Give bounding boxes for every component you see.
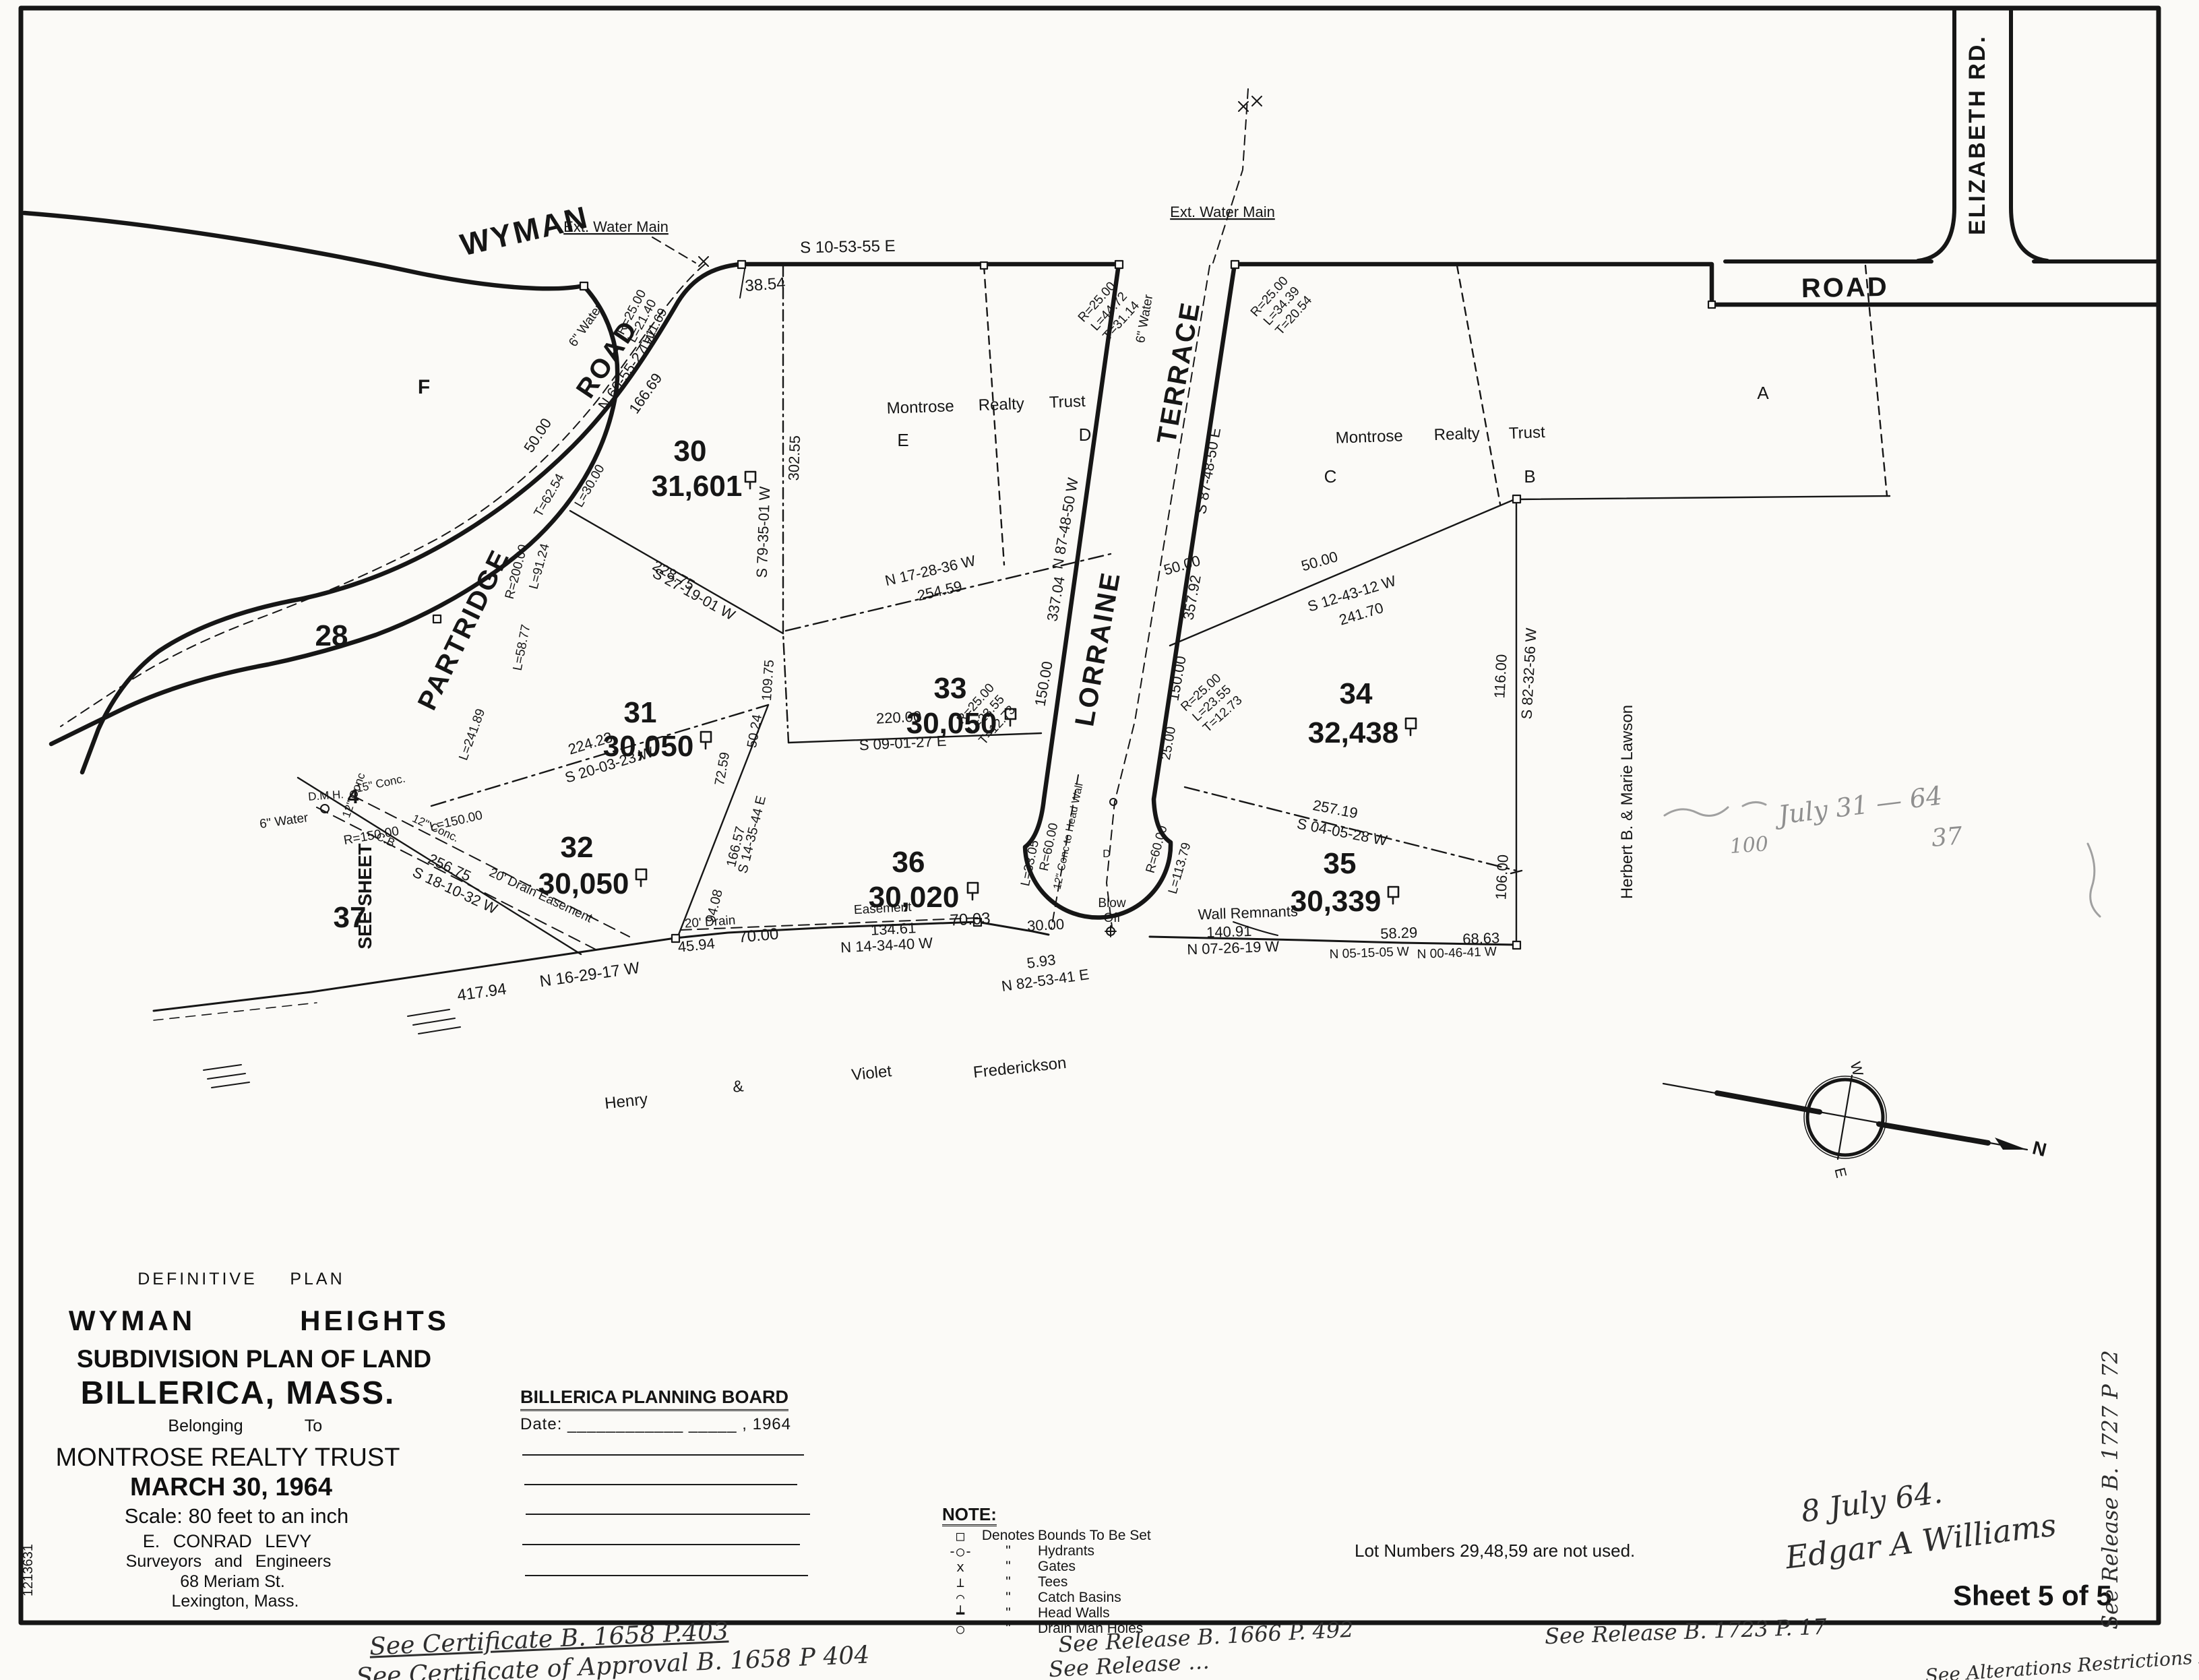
title-subtitle: SUBDIVISION PLAN OF LAND — [77, 1345, 431, 1373]
owner-frederickson-3: Violet — [850, 1062, 892, 1084]
bearing-n051505w: N 05-15-05 W — [1329, 945, 1409, 962]
partridge-road-west-edge — [51, 286, 617, 744]
pencil-date: July 31 — 64 — [1772, 780, 1944, 830]
planning-board-heading: BILLERICA PLANNING BOARD — [520, 1387, 788, 1411]
lot-30-area: 31,601 — [652, 470, 743, 503]
blow-off-label-2: Off — [1104, 911, 1121, 925]
title-to: To — [305, 1417, 322, 1436]
legend-ditto: Denotes — [979, 1528, 1038, 1544]
owner-frederickson-1: Henry — [604, 1090, 649, 1113]
parcel-f: F — [418, 376, 430, 398]
dist-7000: 70.00 — [737, 925, 779, 946]
title-firm: E. CONRAD LEVY — [143, 1531, 312, 1552]
title-definitive: DEFINITIVE — [137, 1270, 257, 1289]
bearing-n825341e: N 82-53-41 E — [1000, 966, 1090, 995]
dist-3854: 38.54 — [745, 274, 786, 295]
blow-off-label-1: Blow — [1098, 896, 1125, 910]
bearing-n172836w: N 17-28-36 W — [884, 552, 977, 589]
lot-34-number: 34 — [1340, 677, 1373, 710]
bearing-n004641w: N 00-46-41 W — [1417, 945, 1497, 962]
parcel-d: D — [1079, 425, 1092, 445]
subdivision-map-drawing: WYMANROADELIZABETH RD.PARTRIDGEROADLORRA… — [0, 0, 2199, 1680]
lorraine-road-name: LORRAINE — [1070, 569, 1126, 728]
dist-14091: 140.91 — [1206, 923, 1252, 941]
dist-22000: 220.00 — [875, 708, 922, 726]
bearing-s271901w: S 27-19-01 W — [650, 565, 738, 624]
lot-35-number: 35 — [1324, 847, 1357, 880]
dist-4594: 45.94 — [677, 935, 716, 956]
curve-l24189: L=241.89 — [456, 707, 488, 762]
title-owner: MONTROSE REALTY TRUST — [56, 1443, 400, 1472]
wyman-road-word: ROAD — [1801, 272, 1890, 303]
bearing-wyman: S 10-53-55 E — [800, 237, 896, 257]
lots-not-used-note: Lot Numbers 29,48,59 are not used. — [1355, 1541, 1635, 1561]
compass-rose — [1663, 1076, 2027, 1159]
lot-34-area: 32,438 — [1308, 716, 1399, 749]
legend-ditto: " — [979, 1590, 1038, 1606]
wyman-road-south-edge-right — [1235, 264, 2159, 305]
dist-25719: 257.19 — [1311, 797, 1359, 821]
curve-l9124: L=91.24 — [527, 542, 553, 591]
legend-row: -○-"Hydrants — [942, 1543, 1293, 1559]
legend-row: ⊥"Tees — [942, 1574, 1293, 1590]
pencil-scribbles — [1665, 802, 2100, 916]
elizabeth-road-name: ELIZABETH RD. — [1964, 34, 1990, 235]
pencil-100: 100 — [1729, 832, 1770, 859]
legend-symbol: x — [942, 1559, 979, 1575]
signature-line — [526, 1514, 810, 1515]
lot-35-area: 30,339 — [1291, 885, 1382, 918]
signature-line — [524, 1484, 797, 1485]
owner-frederickson-2: & — [732, 1077, 745, 1096]
pipe-12in-conc-b: 12" Conc — [340, 771, 368, 819]
dist-5829: 58.29 — [1380, 924, 1418, 942]
legend-symbol: ⊥ — [942, 1574, 979, 1590]
parcel-c: C — [1324, 466, 1337, 487]
legend-symbol: ◠ — [942, 1590, 979, 1606]
water-6in-partridge-lower: 6" Water — [259, 811, 309, 832]
owner-frederickson-4: Frederickson — [972, 1054, 1067, 1082]
bearing-n072619w: N 07-26-19 W — [1187, 938, 1280, 958]
parcel-b: B — [1524, 466, 1535, 487]
bearing-s823256w: S 82-32-56 W — [1518, 627, 1539, 720]
dist-3000: 30.00 — [1026, 916, 1064, 935]
parcel-e: E — [897, 430, 908, 450]
wall-remnants-label: Wall Remnants — [1198, 902, 1298, 923]
drain-easement-bottom-a: 20' Drain — [684, 913, 736, 931]
lot-33-number: 33 — [934, 672, 967, 705]
title-date: MARCH 30, 1964 — [130, 1473, 332, 1502]
compass-w: W — [1847, 1060, 1867, 1078]
title-name2: HEIGHTS — [300, 1305, 450, 1337]
dmh-label: D.M.H. — [308, 788, 344, 803]
legend-ditto: " — [979, 1605, 1038, 1621]
legend-label: Head Walls — [1038, 1605, 1293, 1621]
water-6in-terrace: 6" Water — [1134, 293, 1156, 344]
dist-33704: 337.04 — [1043, 575, 1067, 623]
pencil-37: 37 — [1930, 822, 1963, 852]
dist-2500: 25.00 — [1158, 725, 1179, 761]
bearing-s090127e: S 09-01-27 E — [859, 733, 947, 754]
lot-36-number: 36 — [892, 846, 925, 879]
owner-montrose-1c: Trust — [1049, 392, 1086, 412]
title-town: BILLERICA, MASS. — [81, 1375, 396, 1412]
legend-label: Tees — [1038, 1574, 1293, 1590]
legend-ditto: " — [979, 1574, 1038, 1590]
lot-30-number: 30 — [674, 435, 707, 468]
drain-d-mark: D — [1103, 848, 1111, 860]
owner-montrose-1b: Realty — [978, 395, 1024, 414]
legend-symbol: -○- — [942, 1543, 979, 1559]
legend-row: ┷"Head Walls — [942, 1605, 1293, 1621]
ext-water-main-left: Ext. Water Main — [563, 218, 669, 235]
bearing-n162917w: N 16-29-17 W — [538, 959, 641, 991]
lot-32-number: 32 — [561, 831, 594, 864]
legend-symbol: □ — [942, 1528, 979, 1544]
planning-board-date-line: Date: ____________ _____ , 1964 — [520, 1415, 791, 1434]
dist-6863: 68.63 — [1462, 929, 1500, 947]
signature-line — [525, 1575, 808, 1576]
legend-symbol: ○ — [942, 1621, 979, 1637]
dist-25459: 254.59 — [916, 578, 964, 604]
lot-37-number: 37 — [334, 901, 367, 934]
legend-symbol: ┷ — [942, 1605, 979, 1621]
title-belonging: Belonging — [168, 1417, 243, 1436]
dist-15000-w: 150.00 — [1031, 660, 1055, 708]
legend-label: Hydrants — [1038, 1543, 1293, 1559]
dist-7003: 70.03 — [950, 909, 991, 929]
survey-plan-sheet: WYMANROADELIZABETH RD.PARTRIDGEROADLORRA… — [0, 0, 2199, 1680]
dist-5000-a: 50.00 — [1162, 552, 1202, 578]
signature-line — [522, 1454, 804, 1456]
title-firm-role: Surveyors and Engineers — [126, 1552, 332, 1572]
legend-row: x"Gates — [942, 1559, 1293, 1574]
bearing-s040528w: S 04-05-28 W — [1295, 815, 1388, 848]
legend-heading: NOTE: — [942, 1504, 997, 1526]
dist-30255: 302.55 — [785, 435, 803, 481]
lot-31-number: 31 — [624, 696, 657, 729]
legend-label: Gates — [1038, 1559, 1293, 1575]
legend-ditto: " — [979, 1559, 1038, 1575]
dist-7259: 72.59 — [712, 751, 733, 786]
title-firm-street: 68 Meriam St. — [180, 1572, 285, 1592]
dist-35792: 357.92 — [1179, 573, 1204, 621]
dist-593: 5.93 — [1026, 951, 1057, 972]
film-number: 1213631 — [21, 1544, 36, 1596]
owner-montrose-2c: Trust — [1508, 423, 1545, 443]
bearing-s793501w: S 79-35-01 W — [753, 486, 774, 578]
partridge-road-name: PARTRIDGE — [412, 545, 516, 715]
dist-5000-partridge: 50.00 — [520, 415, 555, 456]
drain-easement-bottom-b: Easement — [853, 900, 912, 917]
legend-label: Bounds To Be Set — [1038, 1528, 1293, 1544]
title-scale: Scale: 80 feet to an inch — [125, 1504, 349, 1528]
bearing-s874850e: S 87-48-50 E — [1192, 427, 1224, 516]
title-firm-town: Lexington, Mass. — [172, 1592, 299, 1611]
bearing-n143440w: N 14-34-40 W — [840, 934, 933, 956]
dist-11600: 116.00 — [1491, 654, 1510, 699]
title-plan: PLAN — [290, 1270, 344, 1289]
dist-5000-b: 50.00 — [1299, 548, 1340, 574]
owner-montrose-1a: Montrose — [886, 397, 954, 417]
ext-water-main-right: Ext. Water Main — [1170, 204, 1275, 220]
legend-row: ◠"Catch Basins — [942, 1590, 1293, 1605]
legend-ditto: " — [979, 1543, 1038, 1559]
dist-10975: 109.75 — [760, 659, 777, 702]
owner-montrose-2b: Realty — [1433, 425, 1480, 444]
dist-41794: 417.94 — [456, 980, 507, 1005]
dist-15000-e: 150.00 — [1165, 654, 1189, 702]
sheet-number-label: Sheet 5 of 5 — [1953, 1580, 2112, 1612]
legend-ditto: " — [979, 1621, 1038, 1637]
note-legend: NOTE: □DenotesBounds To Be Set-○-"Hydran… — [942, 1504, 1293, 1636]
owner-lawson: Herbert B. & Marie Lawson — [1618, 705, 1636, 899]
compass-e: E — [1831, 1166, 1850, 1179]
lot-28-number: 28 — [315, 619, 348, 652]
compass-n: N — [2031, 1137, 2049, 1160]
legend-label: Catch Basins — [1038, 1590, 1293, 1606]
owner-montrose-2a: Montrose — [1335, 427, 1403, 447]
signature-line — [522, 1544, 800, 1545]
title-name1: WYMAN — [69, 1305, 195, 1337]
handwritten-margin-note: See Release B. 1727 P 72 — [2097, 1350, 2123, 1629]
dist-10600: 106.00 — [1492, 854, 1511, 900]
curve-l5877: L=58.77 — [511, 623, 534, 672]
legend-row: □DenotesBounds To Be Set — [942, 1528, 1293, 1543]
parcel-a: A — [1757, 383, 1769, 403]
dist-5024: 50.24 — [745, 713, 765, 749]
lorraine-road-word: TERRACE — [1152, 299, 1206, 446]
